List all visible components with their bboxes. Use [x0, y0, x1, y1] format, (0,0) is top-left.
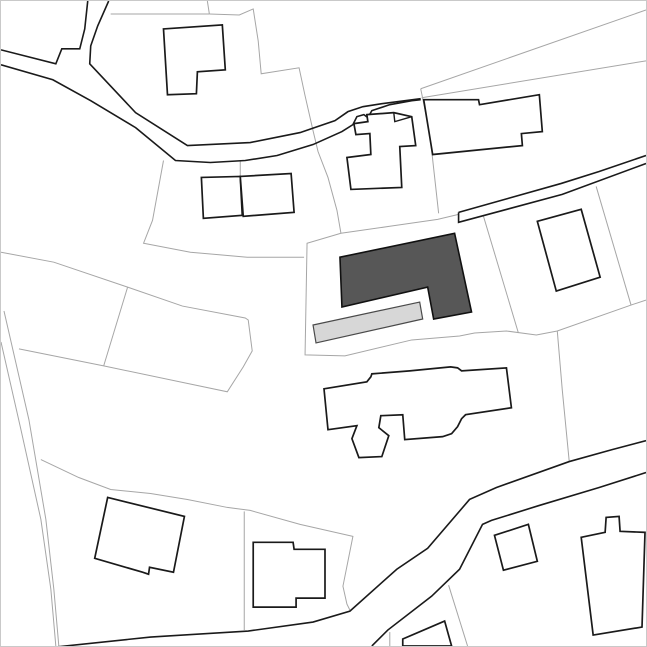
layer-buildings: [95, 25, 645, 646]
road-east-upper-edge: [459, 156, 646, 213]
building-southeast-large: [581, 516, 645, 635]
parcel-line-east-2: [596, 186, 631, 305]
parcel-line-ne-upper: [422, 61, 646, 98]
site-plan-svg[interactable]: [1, 1, 646, 646]
layer-highlights: [313, 233, 472, 343]
building-southwest: [95, 497, 185, 574]
footpath-west-left-edge: [1, 342, 56, 646]
building-north-rect-2: [240, 173, 294, 216]
highlight-annex-bar[interactable]: [313, 302, 423, 343]
parcel-line-ne-diagonal: [421, 10, 646, 89]
parcel-line-east-1: [484, 216, 519, 333]
parcel-line-center-north: [341, 214, 459, 233]
building-center-complex: [324, 367, 511, 458]
building-northwest: [163, 25, 225, 95]
parcel-line-west-divider: [104, 287, 128, 366]
road-nw-upper-edge: [1, 1, 88, 64]
building-south-center: [253, 542, 325, 607]
building-north-rect-1: [201, 176, 242, 218]
building-north-cross: [347, 113, 416, 190]
site-plan-map[interactable]: [0, 0, 647, 647]
parcel-line-s-divider-2: [449, 585, 468, 646]
building-east-rect: [537, 209, 600, 291]
parcel-line-top-stub: [207, 1, 209, 14]
building-south-partial: [403, 621, 452, 646]
parcel-line-east-branch: [557, 331, 569, 462]
building-northeast: [424, 95, 543, 155]
road-north-lower-edge: [1, 65, 421, 163]
road-east-lower-edge: [459, 163, 646, 222]
building-southeast-small: [494, 524, 537, 570]
parcel-line-west: [1, 252, 252, 392]
